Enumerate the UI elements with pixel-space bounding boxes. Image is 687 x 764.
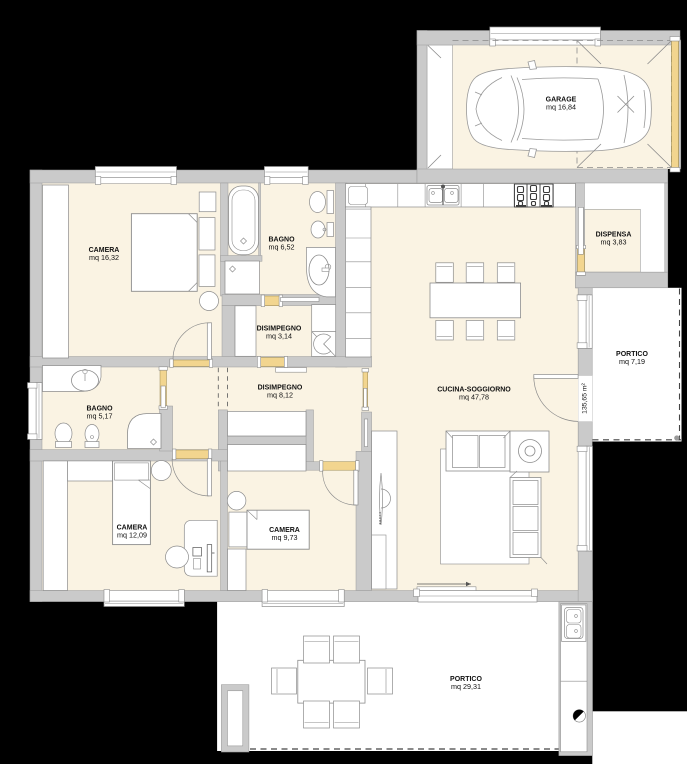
svg-text:mq 3,14: mq 3,14 xyxy=(266,332,292,341)
svg-text:mq 7,19: mq 7,19 xyxy=(619,357,645,366)
svg-text:mq 9,73: mq 9,73 xyxy=(272,533,298,542)
svg-text:mq 8,12: mq 8,12 xyxy=(267,391,293,400)
svg-text:135,65 m²: 135,65 m² xyxy=(582,382,589,413)
svg-text:mq 16,84: mq 16,84 xyxy=(546,103,576,112)
svg-text:mq 12,09: mq 12,09 xyxy=(117,531,147,540)
svg-text:mq 47,78: mq 47,78 xyxy=(459,393,489,402)
svg-text:mq 3,83: mq 3,83 xyxy=(601,238,627,247)
svg-text:mq 6,52: mq 6,52 xyxy=(269,243,295,252)
svg-text:mq 29,31: mq 29,31 xyxy=(451,682,481,691)
svg-text:mq 16,32: mq 16,32 xyxy=(89,253,119,262)
svg-text:mq 5,17: mq 5,17 xyxy=(87,412,113,421)
